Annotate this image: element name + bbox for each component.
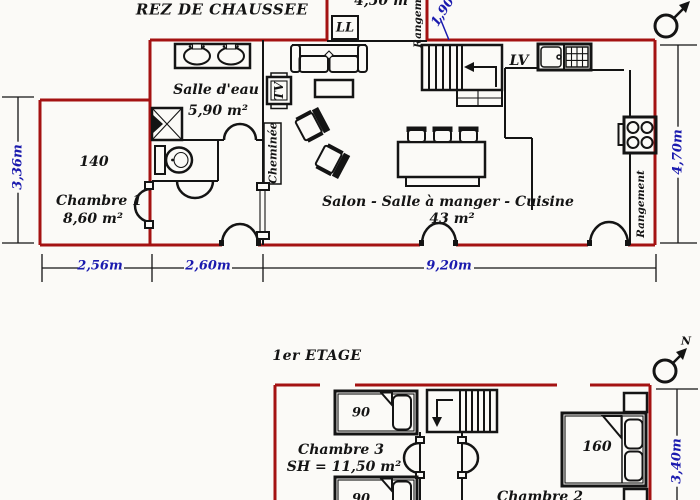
rdc-interior-walls (152, 40, 263, 245)
etage-doors (404, 437, 478, 478)
tv-label: TV (273, 81, 285, 99)
single-bed-1 (335, 391, 417, 434)
north-arrow-bottom (654, 348, 687, 382)
bathroom-area: 5,90 m² (188, 104, 248, 118)
floor-plan: REZ DE CHAUSSEE 4,50 m LL Rangement 1,90… (0, 0, 700, 500)
bed1-size: 140 (79, 155, 108, 169)
living-name: Salon - Salle à manger - Cuisine (322, 195, 574, 209)
single-bed-2 (335, 477, 417, 500)
dim-left-height: 3,36m (12, 141, 25, 192)
vanity (175, 44, 250, 68)
nightstand (624, 393, 647, 412)
nightstand (624, 489, 647, 500)
fireplace-label: Cheminée (267, 122, 278, 184)
bedroom3-name: Chambre 3 (298, 443, 384, 457)
storage-top-label: Rangement (413, 0, 424, 48)
dim-right-height: 4,70m (672, 126, 685, 177)
bedroom1-area: 8,60 m² (63, 212, 123, 226)
shower (152, 108, 182, 140)
kitchen-island (398, 127, 485, 187)
north-arrow-top (655, 1, 690, 37)
bed3b-size: 90 (352, 493, 370, 500)
plan-linework (0, 0, 700, 500)
storage-right-label: Rangement (636, 170, 647, 238)
bed3a-size: 90 (352, 407, 370, 420)
stairs-ground-floor (422, 45, 502, 106)
first-floor-title: 1er ETAGE (272, 349, 361, 363)
kitchen-sink (538, 44, 591, 70)
armchair-2 (314, 142, 351, 179)
stair-direction-arrow (432, 417, 442, 427)
bathroom-name: Salle d'eau (173, 83, 259, 97)
dishwasher-label: LV (509, 54, 528, 68)
dim-top-width: 4,50 m (354, 0, 408, 8)
stove (619, 117, 657, 153)
coffee-table (315, 80, 353, 97)
bedroom1-name: Chambre 1 (56, 194, 142, 208)
sliding-door (257, 183, 269, 239)
living-area: 43 m² (429, 212, 474, 226)
dim-etage-right-height: 3,40m (671, 435, 684, 486)
stairs-first-floor (427, 390, 497, 432)
sofa (291, 45, 367, 72)
armchair-1 (294, 106, 331, 143)
toilet (155, 146, 192, 174)
rdc-doors (135, 124, 630, 246)
rdc-dimension-lines (2, 18, 697, 282)
bedroom2-name: Chambre 2 (497, 490, 583, 500)
washer-label: LL (336, 21, 354, 34)
bed2-size: 160 (582, 440, 611, 454)
stair-direction-arrow (464, 62, 474, 72)
dim-bottom-3: 9,20m (426, 260, 471, 273)
dim-bottom-1: 2,56m (77, 260, 122, 273)
dim-bottom-2: 2,60m (185, 260, 230, 273)
bedroom3-area: SH = 11,50 m² (287, 460, 401, 474)
ground-floor-title: REZ DE CHAUSSEE (136, 3, 308, 18)
north-label: N (681, 336, 691, 347)
